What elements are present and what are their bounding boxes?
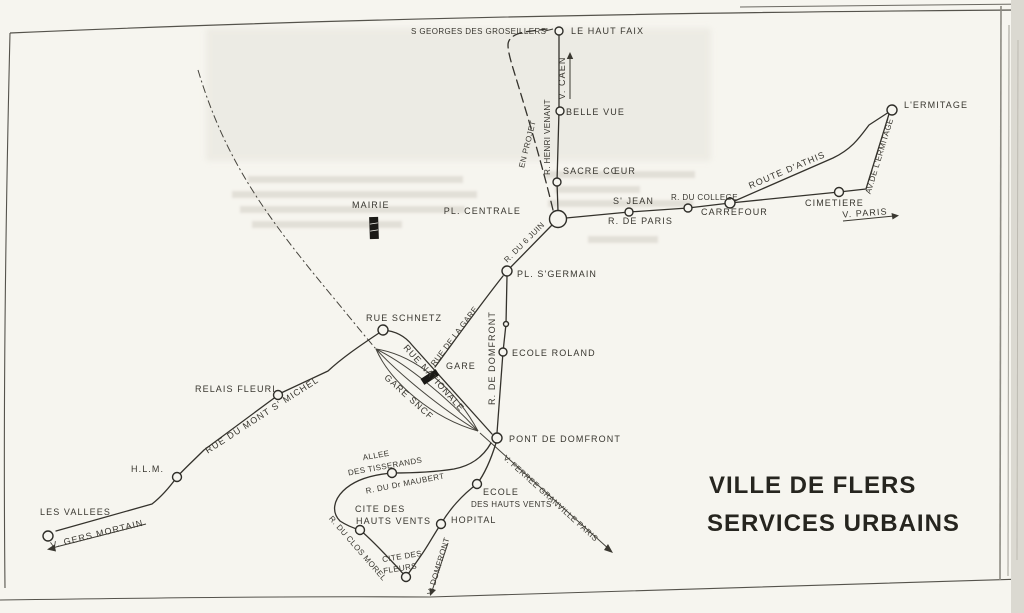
frame-bottom-border (0, 579, 1024, 600)
station-l-ermitage-label: L'ERMITAGE (904, 100, 968, 110)
station-sacre-coeur-marker (553, 178, 561, 186)
frame-left-border (4, 33, 10, 588)
station-ecole-roland-label: ECOLE ROLAND (512, 348, 596, 358)
station-ecole-roland-marker (499, 348, 507, 356)
station-cite-fleurs-label-2: FLEURS (383, 561, 418, 575)
station-allee-tisserands-label-1: ALLEE (362, 449, 390, 463)
station-ecole-des-hauts-vents-marker (473, 480, 482, 489)
station-rue-schnetz-label: RUE SCHNETZ (366, 313, 442, 323)
station-belle-vue-marker (556, 107, 564, 115)
station-pl-centrale-marker (550, 211, 567, 228)
direction-v-caen-label: V. CAEN (557, 57, 567, 100)
station-le-haut-faix-marker (555, 27, 563, 35)
station-cite-hauts-vents-label-1: CITE DES (355, 504, 405, 514)
street-v-ferree-label: V. FERREE GRANVILLE PARIS (501, 453, 599, 543)
station-s-jean-marker (625, 208, 633, 216)
station-hopital-marker (437, 520, 446, 529)
route-west-line (56, 333, 379, 531)
station-rue-schnetz-marker (378, 325, 388, 335)
station-l-ermitage-marker (887, 105, 897, 115)
station-cite-des-hauts-vents-marker (356, 526, 365, 535)
station-gare-label: GARE (446, 361, 476, 371)
station-cimetiere-label: CIMETIERE (805, 198, 864, 208)
station-cite-hauts-vents-label-2: HAUTS VENTS (356, 516, 431, 526)
station-hopital-label: HOPITAL (451, 515, 497, 525)
page-top-edge (740, 4, 1023, 7)
scan-shadow-area (206, 28, 711, 161)
landmark-mairie-label: MAIRIE (352, 200, 390, 210)
page-right-edge-line1 (1000, 6, 1001, 580)
station-cite-des-fleurs-marker (402, 573, 411, 582)
street-route-d-athis-label: ROUTE D'ATHIS (747, 149, 827, 190)
station-pl-s-germain-marker (502, 266, 512, 276)
map-title-line1: VILLE DE FLERS (709, 472, 916, 499)
street-r-du-6-juin-label: R. DU 6 JUIN (502, 220, 546, 264)
station-pl-s-germain-label: PL. S'GERMAIN (517, 269, 597, 279)
station-pl-centrale-label: PL. CENTRALE (444, 206, 521, 216)
station-hlm-label: H.L.M. (131, 464, 164, 474)
scanned-map-page: S GEORGES DES GROSEILLERS LE HAUT FAIX B… (0, 0, 1024, 613)
station-relais-fleuri-label: RELAIS FLEURI (195, 384, 276, 394)
station-minor-stop-marker (504, 322, 509, 327)
street-r-de-domfront-label: R. DE DOMFRONT (487, 311, 497, 405)
station-pont-de-domfront-label: PONT DE DOMFRONT (509, 434, 621, 444)
station-r-du-college-label: R. DU COLLEGE (671, 193, 738, 202)
station-pont-de-domfront-marker (492, 433, 502, 443)
station-s-jean-label: S' JEAN (613, 196, 654, 206)
station-belle-vue-label: BELLE VUE (566, 107, 625, 117)
street-r-de-paris-label: R. DE PARIS (608, 216, 673, 226)
street-av-de-l-ermitage-label: AV.DE L'ERMITAGE (864, 117, 896, 195)
station-ecole-hauts-vents-label-1: ECOLE (483, 487, 519, 497)
station-ecole-hauts-vents-label-2: DES HAUTS VENTS (471, 500, 552, 509)
direction-v-domfront-label: V. DOMFRONT (425, 536, 451, 596)
street-r-henri-venant-label: R. HENRI VENANT (543, 99, 552, 175)
mairie-building-icon (369, 217, 379, 239)
flers-transit-map: S GEORGES DES GROSEILLERS LE HAUT FAIX B… (0, 0, 1024, 613)
station-hlm-marker (173, 473, 182, 482)
direction-v-gers-mortain-label: V. GERS MORTAIN (50, 518, 145, 551)
station-s-georges-label: S GEORGES DES GROSEILLERS (411, 27, 546, 36)
map-title-line2: SERVICES URBAINS (707, 510, 960, 537)
station-les-vallees-label: LES VALLEES (40, 507, 111, 517)
station-sacre-coeur-label: SACRE CŒUR (563, 166, 636, 176)
station-carrefour-label: CARREFOUR (701, 207, 768, 217)
station-r-du-college-marker (684, 204, 692, 212)
station-cimetiere-marker (835, 188, 844, 197)
page-right-edge-line2 (1008, 25, 1009, 576)
station-le-haut-faix-label: LE HAUT FAIX (571, 26, 644, 36)
